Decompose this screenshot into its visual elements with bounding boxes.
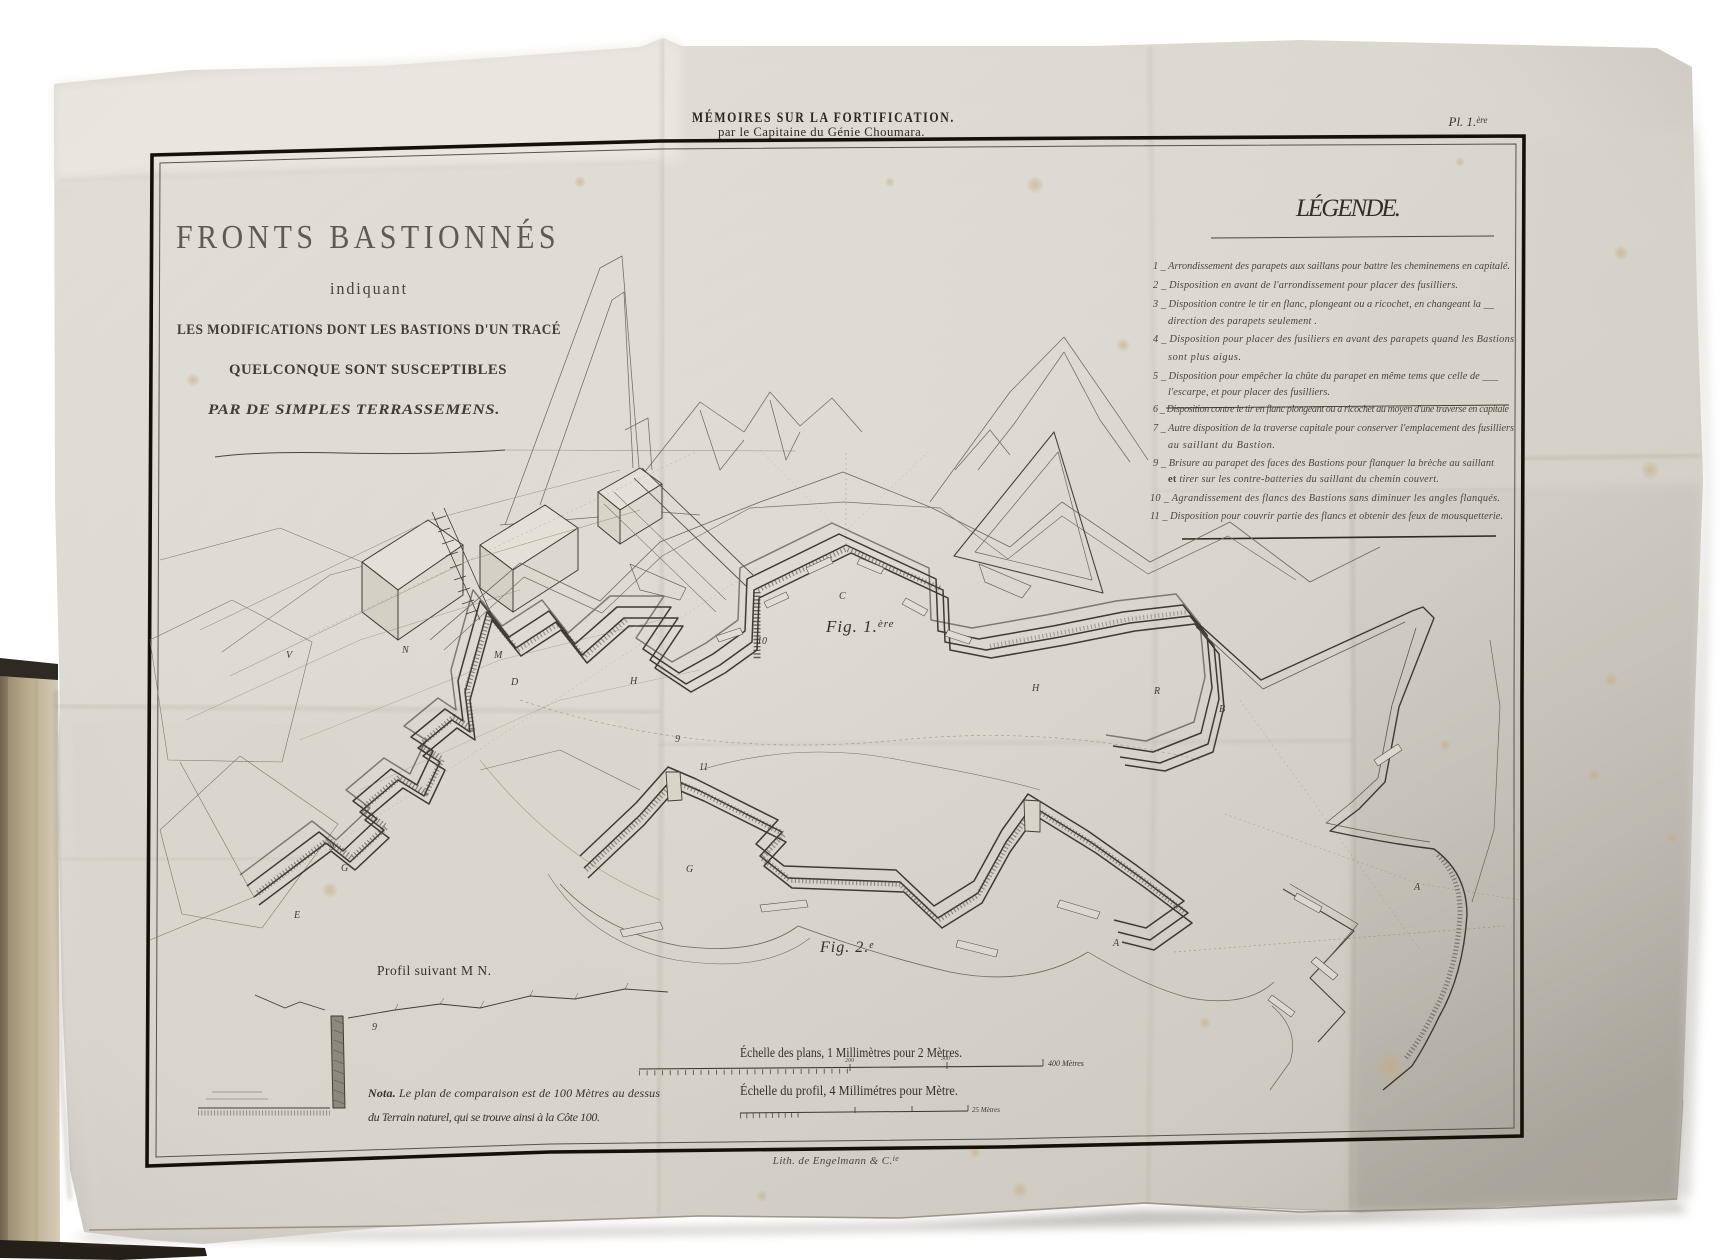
svg-text:l'escarpe, et pour placer des: l'escarpe, et pour placer des fusilliers… <box>1168 387 1330 398</box>
svg-text:A: A <box>1112 938 1120 949</box>
svg-text:9: 9 <box>675 734 680 745</box>
svg-text:10: 10 <box>757 636 767 647</box>
svg-text:4 _ Disposition pour placer de: 4 _ Disposition pour placer des fusilier… <box>1153 334 1514 345</box>
svg-text:Échelle du profil, 4 Millimétr: Échelle du profil, 4 Millimétres pour Mè… <box>740 1083 958 1098</box>
svg-text:du Terrain naturel, qui se tro: du Terrain naturel, qui se trouve ainsi … <box>368 1110 600 1124</box>
svg-text:200: 200 <box>845 1058 854 1064</box>
svg-text:25 Mètres: 25 Mètres <box>972 1106 1000 1114</box>
svg-text:FRONTS BASTIONNÉS: FRONTS BASTIONNÉS <box>176 219 560 256</box>
svg-text:3 _ Disposition contre le tir: 3 _ Disposition contre le tir en flanc, … <box>1152 299 1495 310</box>
svg-text:7 _ Autre disposition de la tr: 7 _ Autre disposition de la traverse cap… <box>1153 423 1514 434</box>
svg-text:indiquant: indiquant <box>330 279 408 298</box>
svg-text:par le Capitaine du Génie Chou: par le Capitaine du Génie Choumara. <box>718 125 925 139</box>
svg-text:LES MODIFICATIONS DONT LES BAS: LES MODIFICATIONS DONT LES BASTIONS D'UN… <box>177 321 561 338</box>
svg-text:E: E <box>293 910 300 921</box>
svg-text:et tirer sur les contre-batter: et tirer sur les contre-batteries du sai… <box>1168 474 1439 485</box>
svg-text:9 _ Brisure au parapet des fac: 9 _ Brisure au parapet des faces des Bas… <box>1153 458 1495 469</box>
svg-text:au saillant du Bastion.: au saillant du Bastion. <box>1168 440 1275 451</box>
svg-text:5 _ Disposition pour empêcher: 5 _ Disposition pour empêcher la chûte d… <box>1153 371 1499 382</box>
svg-text:Fig. 2.e: Fig. 2.e <box>819 939 875 956</box>
svg-text:9: 9 <box>329 842 334 853</box>
svg-text:9: 9 <box>372 1022 377 1033</box>
svg-text:M: M <box>493 650 503 661</box>
svg-text:R: R <box>1153 686 1160 697</box>
svg-text:A: A <box>1413 882 1421 893</box>
svg-text:H: H <box>1031 683 1040 694</box>
svg-text:PAR DE SIMPLES TERRASSEMENS.: PAR DE SIMPLES TERRASSEMENS. <box>208 402 500 418</box>
svg-text:Profil suivant M N.: Profil suivant M N. <box>377 963 492 978</box>
svg-text:G: G <box>341 863 348 874</box>
svg-text:Lith. de Engelmann & C.ie: Lith. de Engelmann & C.ie <box>772 1154 899 1167</box>
svg-text:H: H <box>629 676 638 687</box>
svg-text:MÉMOIRES SUR LA FORTIFICATION.: MÉMOIRES SUR LA FORTIFICATION. <box>692 109 955 126</box>
svg-text:2 _ Disposition en avant de l': 2 _ Disposition en avant de l'arrondisse… <box>1153 280 1458 291</box>
svg-text:D: D <box>510 677 519 688</box>
svg-text:QUELCONQUE SONT SUSCEPTIBLES: QUELCONQUE SONT SUSCEPTIBLES <box>229 362 507 378</box>
svg-text:11 _ Disposition pour couvrir: 11 _ Disposition pour couvrir partie des… <box>1150 511 1503 522</box>
svg-text:B: B <box>1219 704 1225 715</box>
svg-text:Nota. Le plan de comparaison e: Nota. Le plan de comparaison est de 100 … <box>367 1086 660 1100</box>
svg-text:10 _ Agrandissement des flancs: 10 _ Agrandissement des flancs des Basti… <box>1150 493 1500 504</box>
svg-text:C: C <box>839 591 846 602</box>
svg-text:300: 300 <box>940 1056 950 1062</box>
svg-text:G: G <box>686 864 693 875</box>
svg-text:11: 11 <box>699 762 708 773</box>
svg-text:LÉGENDE.: LÉGENDE. <box>1295 194 1404 222</box>
svg-text:sont plus aigus.: sont plus aigus. <box>1168 352 1241 363</box>
svg-text:N: N <box>401 645 410 656</box>
svg-text:400 Mètres: 400 Mètres <box>1048 1059 1084 1068</box>
svg-text:1 _ Arrondissement des parapet: 1 _ Arrondissement des parapets aux sail… <box>1153 261 1510 272</box>
svg-text:direction des parapets seuleme: direction des parapets seulement . <box>1168 316 1317 327</box>
